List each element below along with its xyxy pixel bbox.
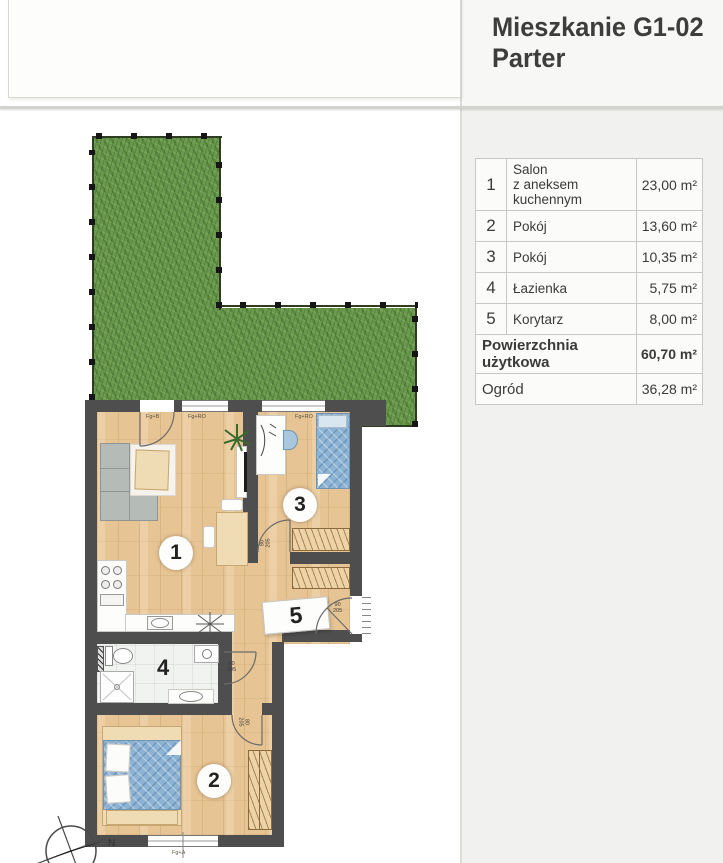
table-row: 2 Pokój 13,60 m² [476,211,702,242]
table-row-total: Powierzchnia użytkowa 60,70 m² [476,335,702,374]
entrance-threshold [362,596,371,634]
wardrobe-room2 [248,750,272,830]
room-label-2: 2 [197,764,231,798]
window-salon [182,400,228,412]
room-label-1: 1 [159,536,193,570]
bed-room2-footboard [106,810,178,825]
garden-area: 36,28 m² [637,374,702,404]
row-name: Pokój [507,211,637,241]
row-number: 2 [476,211,507,241]
garden-grass-left [93,138,220,400]
door-size-bath: 80 205 [227,661,236,673]
room-number-2: 2 [208,769,220,793]
page-title: Mieszkanie G1-02 Parter [492,12,708,74]
row-name: Łazienka [507,273,637,303]
garden-grass-right [218,308,417,400]
total-area: 60,70 m² [637,335,702,373]
coffee-table [134,449,169,490]
row-area: 23,00 m² [637,159,702,210]
header-divider [0,106,723,109]
toilet-bowl [113,648,133,664]
garden-label: Ogród [476,374,637,404]
toilet-tank [105,646,113,666]
dining-table [216,512,248,566]
tv [244,452,247,492]
window-room3 [262,400,325,412]
dining-chair-left [203,526,215,548]
door-size-entrance: 90 205 [333,602,342,614]
row-name: Salon z aneksem kuchennym [507,159,637,210]
row-number: 4 [476,273,507,303]
window-room2 [148,835,218,847]
door-size-room2: 80 205 [238,717,250,726]
row-number: 5 [476,304,507,334]
pillow-room2 [105,774,131,804]
oven [100,594,124,606]
wall-left [85,400,97,847]
washing-machine-door [202,649,212,659]
wall-bathroom-bottom [97,703,232,715]
legend-table: 1 Salon z aneksem kuchennym 23,00 m² 2 P… [475,158,703,405]
title-line-2: Parter [492,43,708,74]
room-number-3: 3 [294,493,306,517]
row-area: 8,00 m² [637,304,702,334]
title-line-1: Mieszkanie G1-02 [492,12,708,43]
bathroom-radiator [97,646,104,672]
duvet-fold-room3 [318,474,331,487]
row-number: 1 [476,159,507,210]
door-size-room3: 80 205 [260,538,272,547]
table-row-garden: Ogród 36,28 m² [476,374,702,404]
row-area: 10,35 m² [637,242,702,272]
window-label-salon: Fg+RO [188,414,206,420]
entrance-opening [350,596,362,634]
room-number-4: 4 [157,655,169,680]
wardrobe-room2-divider [259,750,260,830]
compass-n-label: N [108,838,115,849]
fence-dots-inner [216,158,222,308]
fence-dots-mid [240,302,418,308]
dining-chair-top [221,499,243,511]
room-label-3: 3 [283,488,317,522]
window-label-balcony: Fg+B [146,414,159,420]
stove-burner [101,580,110,589]
pillow-room3 [318,415,347,428]
window-label-room2: Fg+A [172,850,185,856]
stove-burner [113,580,122,589]
table-row: 4 Łazienka 5,75 m² [476,273,702,304]
table-row: 5 Korytarz 8,00 m² [476,304,702,335]
wardrobe-room3 [292,528,350,551]
total-label: Powierzchnia użytkowa [476,335,637,373]
wall-bathroom-top [97,632,230,644]
stove-burner [101,566,110,575]
row-number: 3 [476,242,507,272]
room-number-5: 5 [288,601,303,629]
floorplan-page: 5 1 2 3 4 90 205 80 205 80 205 80 205 Fg… [0,0,723,863]
sink-basin [151,618,169,628]
duvet-fold-room2 [166,740,181,755]
row-area: 13,60 m² [637,211,702,241]
header-box [8,0,461,98]
kitchen-counter-bottom [125,614,235,632]
window-label-room3: Fg+RO [295,414,313,420]
row-name: Pokój [507,242,637,272]
balcony-door-opening [140,400,174,412]
wall-right-lower [272,642,284,847]
table-row: 1 Salon z aneksem kuchennym 23,00 m² [476,159,702,211]
fence-dots-right [412,315,418,427]
shower [100,671,134,703]
room-label-4: 4 [157,655,169,681]
row-name: Korytarz [507,304,637,334]
pillow-room2 [105,743,130,772]
washbasin [179,691,203,702]
row-area: 5,75 m² [637,273,702,303]
room-number-1: 1 [170,541,182,565]
wardrobe-corridor [292,567,350,589]
wall-stub-room2 [262,703,272,715]
info-panel [460,0,723,863]
fence-dots-left [89,150,95,400]
stove-burner [113,566,122,575]
fence-dots-top [96,133,222,139]
table-row: 3 Pokój 10,35 m² [476,242,702,273]
desk [256,415,286,475]
room-label-5-mat: 5 [262,596,331,635]
wall-room3-corridor [290,552,362,564]
